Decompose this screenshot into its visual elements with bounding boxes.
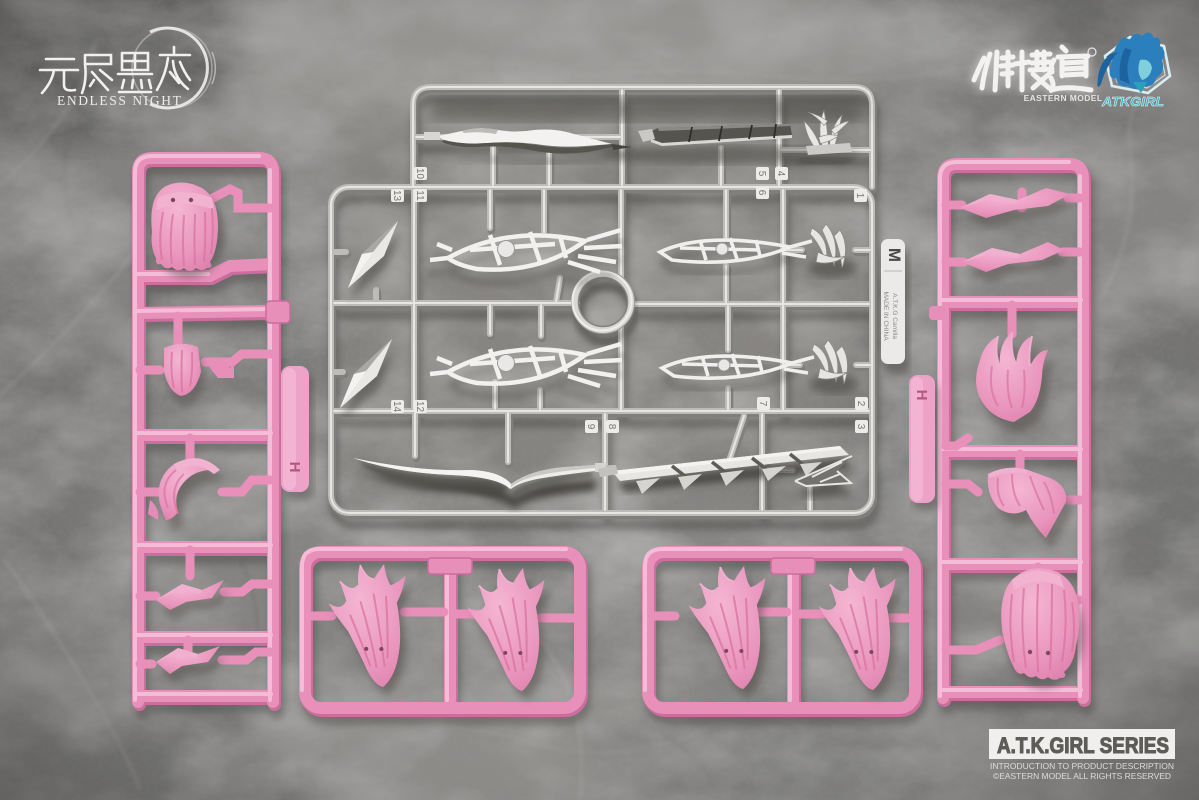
svg-text:H: H	[286, 462, 303, 473]
svg-text:11: 11	[414, 190, 425, 201]
svg-text:12: 12	[414, 401, 425, 413]
svg-text:1: 1	[854, 193, 865, 199]
svg-text:9: 9	[585, 424, 596, 430]
svg-text:5: 5	[756, 171, 767, 177]
svg-text:2: 2	[855, 401, 866, 407]
svg-text:EASTERN MODEL: EASTERN MODEL	[1024, 93, 1103, 103]
svg-text:3: 3	[855, 424, 866, 430]
svg-text:7: 7	[757, 401, 768, 407]
svg-text:H: H	[913, 390, 930, 401]
svg-text:10: 10	[414, 168, 425, 180]
svg-text:13: 13	[391, 190, 402, 202]
svg-text:A.T.K.G Camilla: A.T.K.G Camilla	[891, 293, 898, 339]
svg-text:ENDLESS NIGHT: ENDLESS NIGHT	[57, 93, 182, 108]
svg-text:4: 4	[775, 171, 786, 177]
svg-text:6: 6	[756, 190, 767, 196]
svg-text:©EASTERN MODEL ALL RIGHTS RESE: ©EASTERN MODEL ALL RIGHTS RESERVED	[993, 771, 1171, 781]
svg-text:ATKGIRL: ATKGIRL	[1101, 94, 1164, 109]
svg-text:8: 8	[606, 424, 617, 430]
svg-text:MADE IN CHINA: MADE IN CHINA	[882, 291, 889, 341]
svg-text:A.T.K.GIRL SERIES: A.T.K.GIRL SERIES	[997, 733, 1169, 758]
svg-text:M: M	[885, 248, 904, 262]
svg-text:14: 14	[391, 401, 402, 413]
svg-text:INTRODUCTION TO PRODUCT DESCRI: INTRODUCTION TO PRODUCT DESCRIPTION	[990, 761, 1174, 771]
